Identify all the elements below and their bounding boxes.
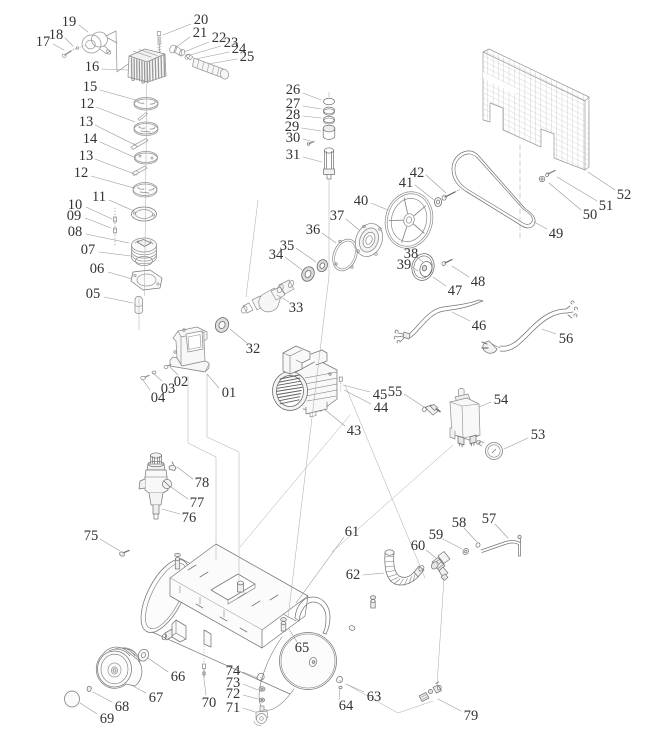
svg-text:12: 12 [80,96,95,112]
svg-text:43: 43 [347,423,362,439]
svg-text:30: 30 [286,130,301,146]
svg-text:42: 42 [410,165,425,181]
svg-text:01: 01 [222,385,237,401]
svg-text:04: 04 [151,390,166,406]
svg-text:11: 11 [92,189,106,205]
svg-text:21: 21 [193,25,208,41]
svg-text:51: 51 [599,198,614,214]
svg-text:48: 48 [471,274,486,290]
svg-text:10: 10 [68,197,83,213]
svg-text:75: 75 [84,528,99,544]
svg-text:49: 49 [549,226,564,242]
svg-text:78: 78 [195,475,210,491]
svg-text:62: 62 [346,567,361,583]
svg-text:25: 25 [240,49,255,65]
svg-text:66: 66 [171,669,186,685]
svg-text:32: 32 [246,341,261,357]
svg-text:46: 46 [472,318,487,334]
svg-text:13: 13 [79,114,94,130]
svg-text:40: 40 [354,193,369,209]
svg-text:45: 45 [373,387,388,403]
svg-text:39: 39 [397,257,412,273]
svg-text:08: 08 [68,224,83,240]
svg-text:31: 31 [286,147,301,163]
svg-text:69: 69 [100,711,115,727]
svg-text:58: 58 [452,515,467,531]
svg-text:33: 33 [289,300,304,316]
svg-text:77: 77 [190,495,205,511]
svg-text:52: 52 [617,187,632,203]
svg-text:68: 68 [115,699,130,715]
svg-text:54: 54 [494,392,509,408]
svg-text:65: 65 [295,640,310,656]
svg-text:16: 16 [85,59,100,75]
svg-text:36: 36 [306,222,321,238]
svg-text:02: 02 [174,374,189,390]
svg-text:76: 76 [182,510,197,526]
svg-text:67: 67 [149,690,164,706]
svg-text:13: 13 [79,148,94,164]
svg-text:06: 06 [90,261,105,277]
svg-text:37: 37 [330,208,345,224]
svg-text:14: 14 [83,131,98,147]
svg-text:55: 55 [388,384,403,400]
svg-text:56: 56 [559,331,574,347]
svg-text:47: 47 [448,283,463,299]
svg-text:79: 79 [464,708,479,724]
svg-text:64: 64 [339,698,354,714]
svg-text:15: 15 [83,79,98,95]
svg-text:12: 12 [74,165,89,181]
svg-text:53: 53 [531,427,546,443]
svg-text:59: 59 [429,527,444,543]
svg-text:19: 19 [62,14,77,30]
svg-text:57: 57 [482,511,497,527]
svg-text:70: 70 [202,695,217,711]
svg-text:05: 05 [86,286,101,302]
svg-text:74: 74 [226,663,241,679]
svg-text:35: 35 [280,238,295,254]
svg-text:71: 71 [226,700,241,716]
svg-text:61: 61 [345,524,360,540]
svg-text:50: 50 [583,207,598,223]
svg-text:60: 60 [411,538,426,554]
svg-text:63: 63 [367,689,382,705]
svg-text:07: 07 [81,242,96,258]
